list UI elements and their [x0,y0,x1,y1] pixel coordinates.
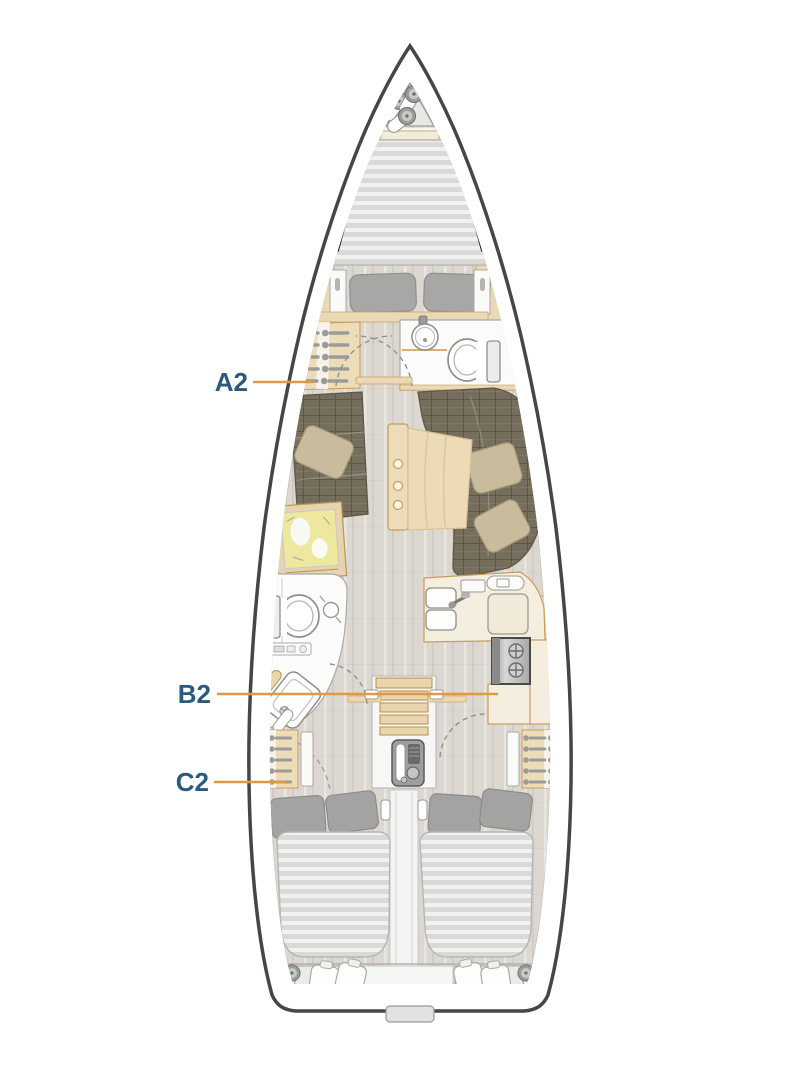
yacht-layout-figure: A2 B2 C2 [0,0,810,1080]
engine-icon [392,740,424,786]
stove-icon [492,638,530,684]
aft-bed-mattress-starboard [420,832,533,957]
toilet-icon-forward-head [448,339,500,382]
swim-platform-step [386,1006,434,1022]
interior-plan [242,82,578,1019]
aft-bed-mattress-port [277,832,390,957]
cabin-label-c2: C2 [176,767,209,797]
galley-refrigerator [488,684,530,724]
cup-holder-icons [394,460,403,510]
cutting-board-icon [461,580,485,592]
cabin-label-b2: B2 [178,679,211,709]
aft-head-shelf [271,643,311,655]
chart-table [274,502,347,581]
nautical-chart-map [281,509,339,569]
galley-tray-icon [487,576,524,590]
aft-center-bulkhead [390,790,418,966]
aft-cabins [245,788,570,966]
yacht-layout-svg: A2 B2 C2 [0,0,810,1080]
cabin-label-a2: A2 [215,367,248,397]
cabin-door-leaf [356,377,412,384]
salon-table [388,424,472,530]
toilet-icon-aft-head [269,595,319,638]
fridge-lid [488,594,528,634]
